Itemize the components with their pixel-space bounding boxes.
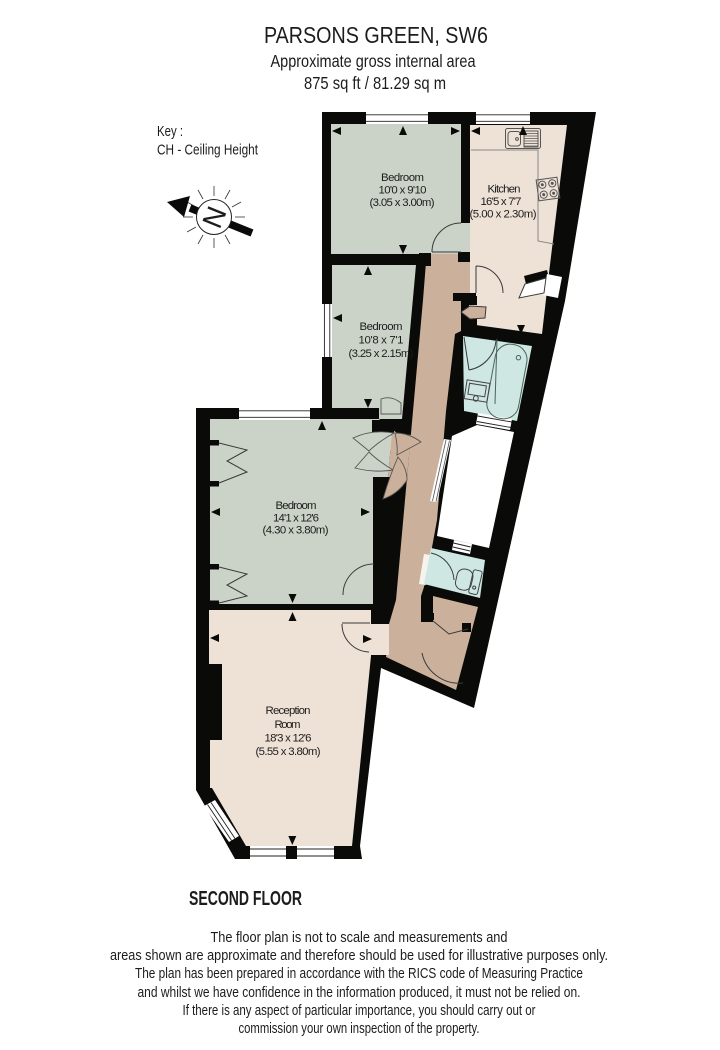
svg-text:The floor plan is not to scale: The floor plan is not to scale and measu…	[211, 930, 508, 946]
svg-text:SECOND FLOOR: SECOND FLOOR	[189, 887, 302, 910]
svg-text:10'8 x 7'1: 10'8 x 7'1	[359, 335, 404, 347]
svg-text:16'5 x 7'7: 16'5 x 7'7	[481, 196, 522, 208]
svg-text:CH - Ceiling Height: CH - Ceiling Height	[157, 143, 258, 159]
svg-text:(5.00 x 2.30m): (5.00 x 2.30m)	[470, 209, 537, 221]
svg-text:areas shown are approximate an: areas shown are approximate and therefor…	[110, 948, 608, 964]
svg-text:Approximate gross internal are: Approximate gross internal area	[271, 51, 476, 71]
svg-text:18'3 x 12'6: 18'3 x 12'6	[265, 733, 312, 745]
svg-text:14'1 x 12'6: 14'1 x 12'6	[273, 513, 319, 525]
svg-text:The plan has been prepared in: The plan has been prepared in accordance…	[135, 966, 583, 982]
svg-text:Reception: Reception	[266, 705, 311, 717]
svg-text:(5.55 x 3.80m): (5.55 x 3.80m)	[256, 746, 321, 758]
svg-text:and whilst we have confidence: and whilst we have confidence in the inf…	[138, 985, 581, 1001]
svg-text:PARSONS GREEN, SW6: PARSONS GREEN, SW6	[264, 22, 488, 48]
svg-text:875 sq ft / 81.29 sq m: 875 sq ft / 81.29 sq m	[304, 73, 446, 93]
svg-text:Room: Room	[275, 719, 301, 731]
svg-text:10'0 x 9'10: 10'0 x 9'10	[379, 185, 427, 197]
svg-text:Bedroom: Bedroom	[381, 172, 424, 184]
svg-text:(4.30 x 3.80m): (4.30 x 3.80m)	[263, 525, 329, 537]
svg-text:Kitchen: Kitchen	[488, 184, 521, 196]
svg-text:Key :: Key :	[157, 124, 183, 140]
svg-text:Bedroom: Bedroom	[276, 500, 317, 512]
svg-text:commission your own inspection: commission your own inspection of the pr…	[239, 1021, 480, 1037]
svg-text:Bedroom: Bedroom	[360, 321, 403, 333]
svg-text:(3.25 x 2.15m): (3.25 x 2.15m)	[349, 348, 414, 360]
svg-text:If there is any aspect of part: If there is any aspect of particular imp…	[183, 1003, 536, 1019]
svg-text:(3.05 x 3.00m): (3.05 x 3.00m)	[370, 197, 435, 209]
